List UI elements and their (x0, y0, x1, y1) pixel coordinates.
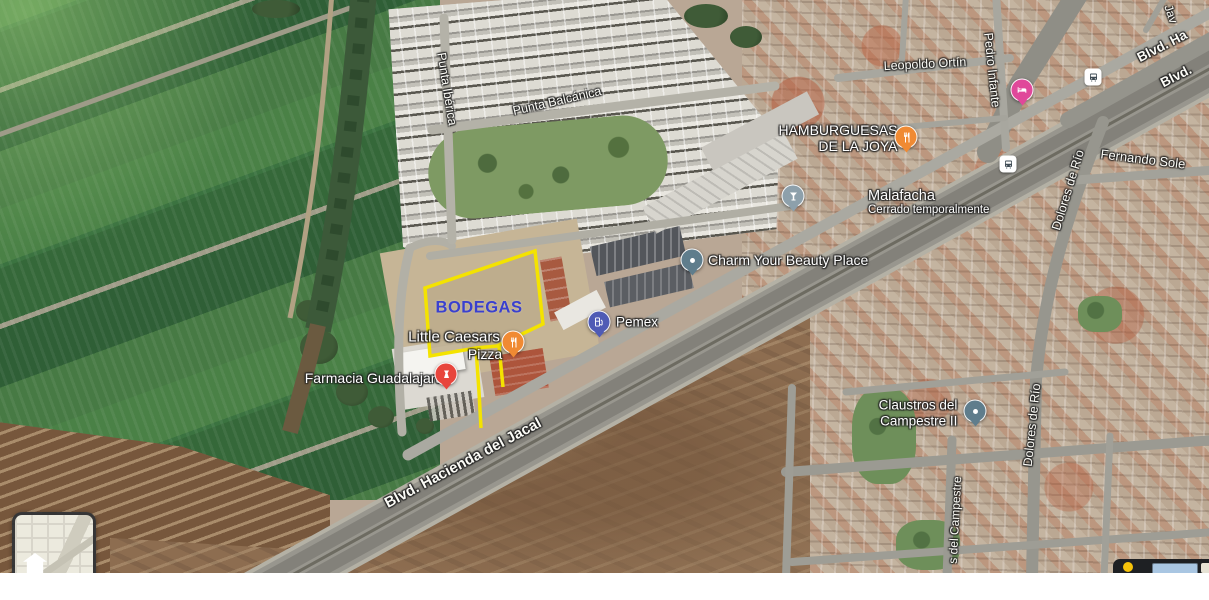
poi-label-little-caesars[interactable]: Little Caesars (408, 329, 500, 346)
pegman-icon[interactable] (1123, 562, 1133, 572)
map-controls-bar[interactable] (1113, 559, 1209, 573)
boulevard (220, 53, 1209, 573)
generic-dot-icon[interactable] (681, 249, 704, 272)
gas-station-icon[interactable] (588, 311, 611, 334)
canal (290, 0, 364, 432)
hotel-icon[interactable] (1011, 79, 1034, 102)
layer-thumbnail[interactable] (1201, 563, 1209, 573)
minimap-inset[interactable] (12, 512, 96, 573)
bar-icon[interactable] (782, 185, 805, 208)
bus-icon[interactable] (1000, 156, 1017, 173)
poi-label-pemex[interactable]: Pemex (616, 315, 658, 330)
satellite-map-canvas[interactable]: Punta Ibérica Punta Balcánica Leopoldo O… (0, 0, 1209, 573)
bodegas-overlay-label: BODEGAS (436, 299, 523, 318)
poi-label-pizza[interactable]: Pizza (468, 346, 502, 362)
map-view-thumbnail[interactable] (1152, 563, 1198, 573)
poi-label-line2: DE LA JOYA (778, 138, 897, 154)
poi-label-charm[interactable]: Charm Your Beauty Place (708, 252, 868, 268)
restaurant-icon[interactable] (895, 126, 918, 149)
poi-name: Malafacha (868, 188, 989, 204)
restaurant-icon[interactable] (502, 331, 525, 354)
poi-label-claustros[interactable]: Claustros del Campestre II (879, 397, 958, 428)
bus-icon[interactable] (1085, 69, 1102, 86)
minimap-road (12, 522, 96, 573)
poi-label-malafacha[interactable]: Malafacha Cerrado temporalmente (868, 188, 989, 216)
screenshot: Punta Ibérica Punta Balcánica Leopoldo O… (0, 0, 1209, 600)
pharmacy-icon[interactable] (435, 363, 458, 386)
farm-track (0, 8, 350, 138)
generic-dot-icon[interactable] (964, 400, 987, 423)
poi-label-farmacia[interactable]: Farmacia Guadalajara (305, 370, 444, 386)
poi-label-hamburguesas[interactable]: HAMBURGUESAS DE LA JOYA (778, 122, 897, 154)
poi-label-line1: Claustros del (879, 397, 958, 413)
poi-label-line1: HAMBURGUESAS (778, 122, 897, 138)
poi-status: Cerrado temporalmente (868, 204, 989, 216)
poi-label-line2: Campestre II (879, 413, 958, 429)
